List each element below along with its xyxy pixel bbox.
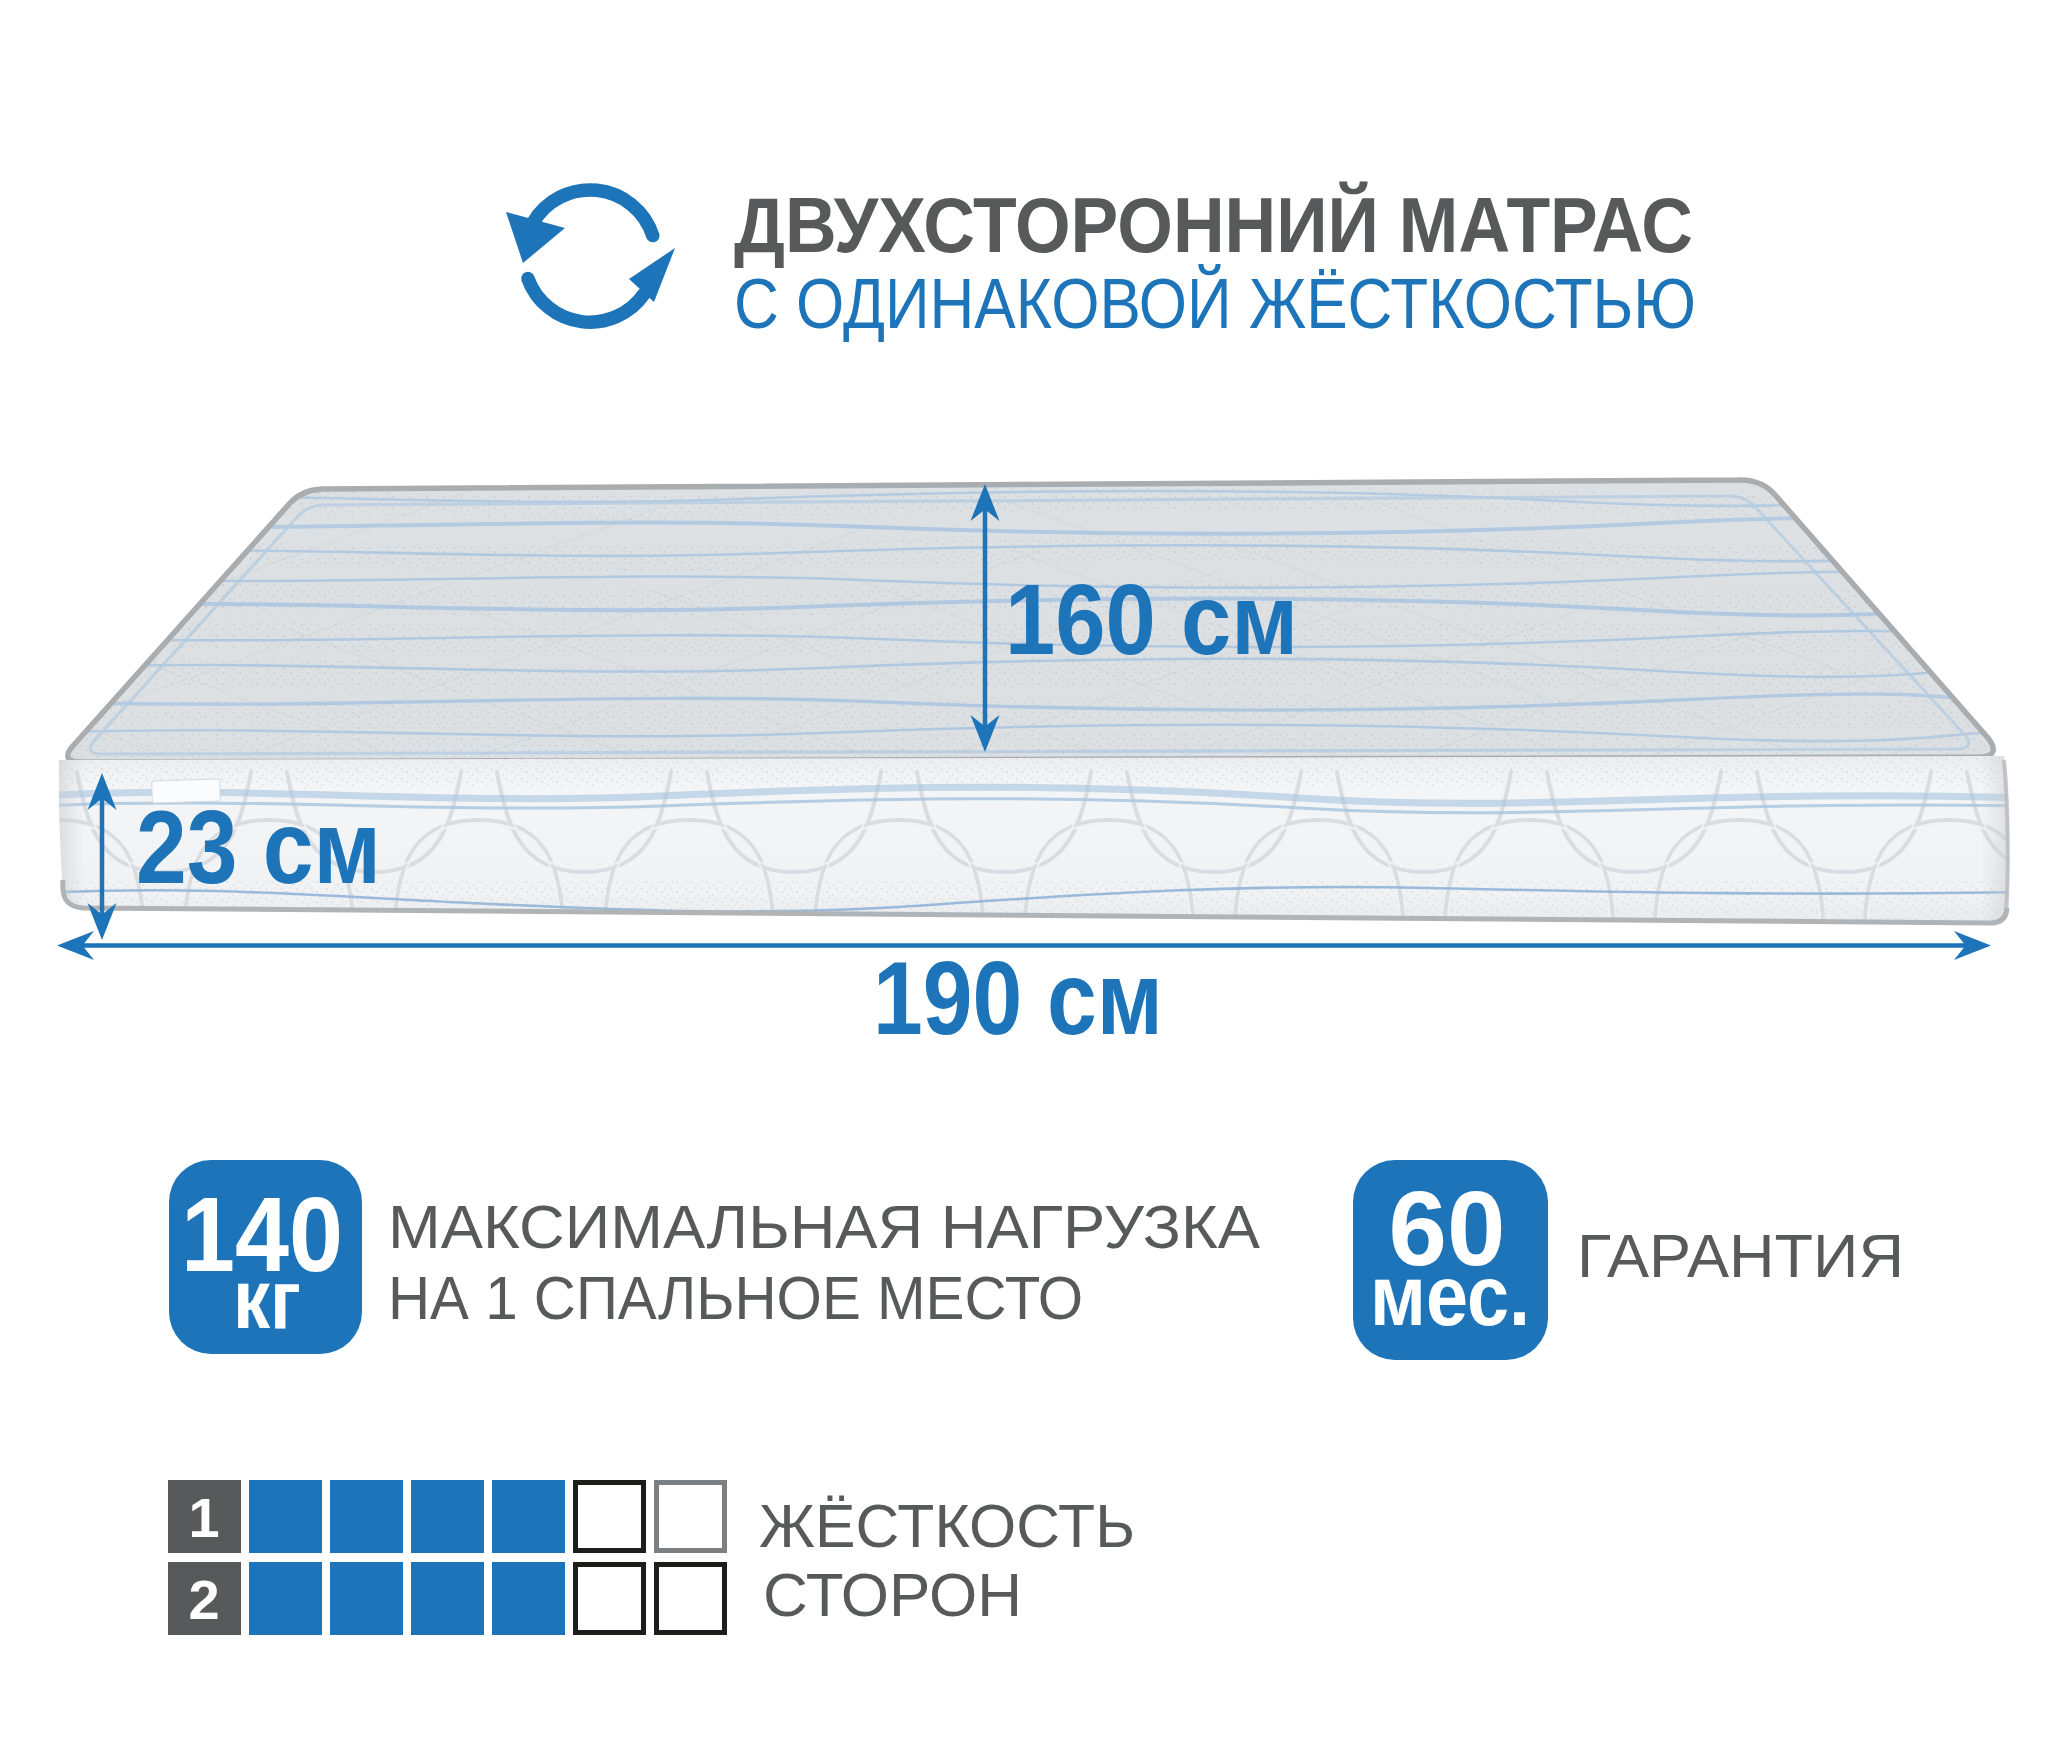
svg-text:МАКСИМАЛЬНАЯ НАГРУЗКА: МАКСИМАЛЬНАЯ НАГРУЗКА — [388, 1192, 1261, 1261]
svg-text:НА 1 СПАЛЬНОЕ МЕСТО: НА 1 СПАЛЬНОЕ МЕСТО — [388, 1263, 1083, 1332]
svg-text:2: 2 — [188, 1568, 219, 1631]
svg-text:160 см: 160 см — [1005, 563, 1298, 675]
svg-text:С ОДИНАКОВОЙ ЖЁСТКОСТЬЮ: С ОДИНАКОВОЙ ЖЁСТКОСТЬЮ — [734, 264, 1696, 343]
svg-text:СТОРОН: СТОРОН — [763, 1560, 1022, 1629]
svg-text:ГАРАНТИЯ: ГАРАНТИЯ — [1577, 1221, 1904, 1290]
svg-text:23 см: 23 см — [136, 790, 381, 905]
svg-text:1: 1 — [188, 1486, 219, 1549]
svg-text:мес.: мес. — [1370, 1247, 1530, 1343]
svg-text:ДВУХСТОРОННИЙ МАТРАС: ДВУХСТОРОННИЙ МАТРАС — [734, 181, 1693, 268]
svg-text:кг: кг — [233, 1252, 301, 1346]
svg-text:ЖЁСТКОСТЬ: ЖЁСТКОСТЬ — [759, 1491, 1135, 1560]
svg-text:190 см: 190 см — [873, 941, 1163, 1056]
